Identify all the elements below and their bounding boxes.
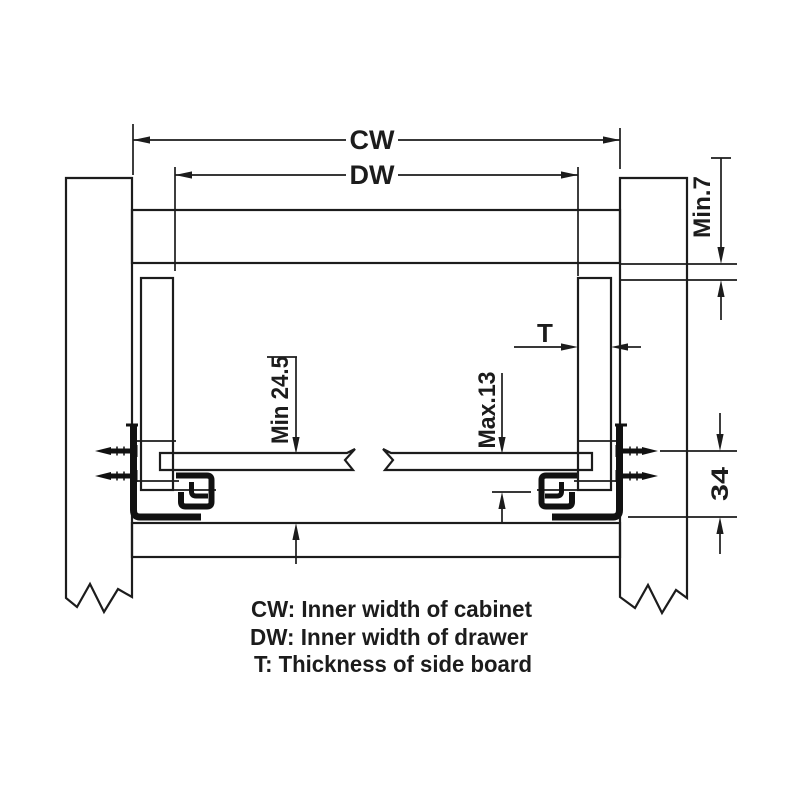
dim-min7-label: Min.7 xyxy=(689,176,716,238)
dim-cw: CW xyxy=(133,125,620,155)
dim-cw-label: CW xyxy=(350,125,395,155)
dim-t-label: T xyxy=(537,318,553,348)
legend-t: T: Thickness of side board xyxy=(254,651,532,677)
dim-min7: Min.7 xyxy=(689,158,731,320)
cabinet-left-wall xyxy=(66,178,132,612)
drawer-bottom-right xyxy=(383,449,592,470)
cabinet-right-wall xyxy=(620,178,687,613)
drawer-left-side-board xyxy=(141,278,173,490)
dim-max13-label: Max.13 xyxy=(474,372,501,449)
dim-dw-label: DW xyxy=(350,160,395,190)
cabinet-bottom-panel xyxy=(132,523,620,557)
dim-min245-label: Min 24.5 xyxy=(267,356,294,444)
dim-max13: Max.13 xyxy=(474,372,531,524)
legend: CW: Inner width of cabinet DW: Inner wid… xyxy=(250,596,532,677)
dim-34-label: 34 xyxy=(707,466,734,501)
drawer-slide-installation-diagram: CW DW T Min.7 Min 24.5 Max.13 xyxy=(0,0,800,800)
dim-34: 34 xyxy=(707,413,734,554)
legend-cw: CW: Inner width of cabinet xyxy=(251,596,532,622)
dim-min245: Min 24.5 xyxy=(267,356,300,564)
dim-dw: DW xyxy=(175,160,578,190)
drawer-right-side-board xyxy=(578,278,611,490)
slide-detail-lines xyxy=(135,441,618,490)
cross-section-drawing: CW DW T Min.7 Min 24.5 Max.13 xyxy=(0,0,800,800)
drawer-bottom-left xyxy=(160,449,355,470)
cabinet-top-panel xyxy=(132,210,620,263)
legend-dw: DW: Inner width of drawer xyxy=(250,624,528,650)
